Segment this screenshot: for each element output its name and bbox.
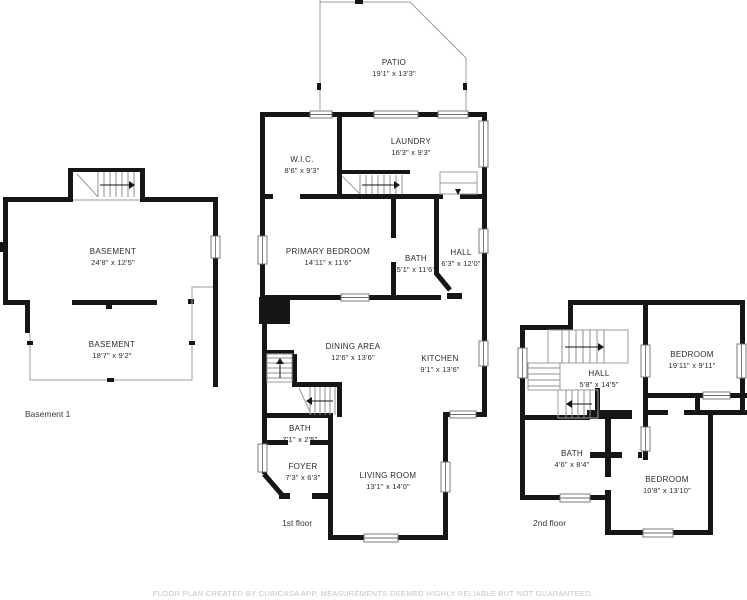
room-dims-living: 13'1" x 14'0" <box>366 482 410 491</box>
room-dims-bedroom-lower: 10'8" x 13'10" <box>643 486 691 495</box>
first-floor-plan: PATIO 19'1" x 13'3" W.I.C. 8'6" x 9'3" L… <box>258 0 488 542</box>
room-name-living: LIVING ROOM <box>360 471 417 480</box>
footer-disclaimer: FLOOR PLAN CREATED BY CUBICASA APP. MEAS… <box>153 589 593 598</box>
hall-closet <box>440 172 477 195</box>
room-dims-basement-main: 24'8" x 12'5" <box>91 258 135 267</box>
room-name-hall-first: HALL <box>450 248 471 257</box>
room-name-bedroom-lower: BEDROOM <box>645 475 688 484</box>
first-floor-main-stairs <box>342 175 402 194</box>
foyer-diagonal-wall <box>264 474 283 496</box>
room-dims-hall-second: 5'8" x 14'5" <box>579 380 618 389</box>
room-name-foyer: FOYER <box>288 462 317 471</box>
room-name-kitchen: KITCHEN <box>421 354 458 363</box>
room-dims-bath-foyer: 7'1" x 2'5" <box>283 435 318 444</box>
room-name-hall-second: HALL <box>588 369 609 378</box>
second-floor-walls <box>520 300 747 535</box>
room-name-bedroom-upper: BEDROOM <box>670 350 713 359</box>
basement-window-right <box>211 236 220 258</box>
floor-label-first: 1st floor <box>282 518 312 528</box>
room-name-laundry: LAUNDRY <box>391 137 432 146</box>
basement-plan: BASEMENT 24'8" x 12'5" BASEMENT 18'7" x … <box>0 168 220 419</box>
room-dims-wic: 8'6" x 9'3" <box>285 166 320 175</box>
room-dims-bath-second: 4'6" x 8'4" <box>555 460 590 469</box>
hall-diagonal-wall <box>436 273 450 290</box>
second-floor-stairs <box>528 330 628 418</box>
room-dims-dining: 12'6" x 13'6" <box>331 353 375 362</box>
second-floor-plan: HALL 5'8" x 14'5" BEDROOM 19'11" x 9'11"… <box>518 300 747 537</box>
room-name-wic: W.I.C. <box>290 155 314 164</box>
room-name-primary-bedroom: PRIMARY BEDROOM <box>286 247 370 256</box>
room-dims-laundry: 16'3" x 9'3" <box>391 148 430 157</box>
room-dims-bath-first: 5'1" x 11'6" <box>397 265 436 274</box>
room-dims-hall-first: 6'3" x 12'0" <box>441 259 480 268</box>
floor-plan-svg: BASEMENT 24'8" x 12'5" BASEMENT 18'7" x … <box>0 0 747 600</box>
room-dims-kitchen: 9'1" x 13'6" <box>420 365 459 374</box>
room-dims-bedroom-upper: 19'11" x 9'11" <box>669 361 716 370</box>
room-name-basement-lower: BASEMENT <box>89 340 135 349</box>
room-name-bath-first: BATH <box>405 254 427 263</box>
floor-label-second: 2nd floor <box>533 518 566 528</box>
patio-outline <box>317 0 467 112</box>
floor-label-basement: Basement 1 <box>25 409 71 419</box>
room-name-patio: PATIO <box>382 58 406 67</box>
room-name-dining: DINING AREA <box>326 342 381 351</box>
room-name-bath-foyer: BATH <box>289 424 311 433</box>
basement-stairs <box>77 172 135 197</box>
room-dims-primary-bedroom: 14'11" x 11'6" <box>305 258 352 267</box>
room-name-basement-main: BASEMENT <box>90 247 136 256</box>
room-dims-patio: 19'1" x 13'3" <box>372 69 416 78</box>
floor-plan-canvas: BASEMENT 24'8" x 12'5" BASEMENT 18'7" x … <box>0 0 747 600</box>
room-dims-foyer: 7'3" x 6'3" <box>286 473 321 482</box>
room-dims-basement-lower: 18'7" x 9'2" <box>92 351 131 360</box>
room-name-bath-second: BATH <box>561 449 583 458</box>
